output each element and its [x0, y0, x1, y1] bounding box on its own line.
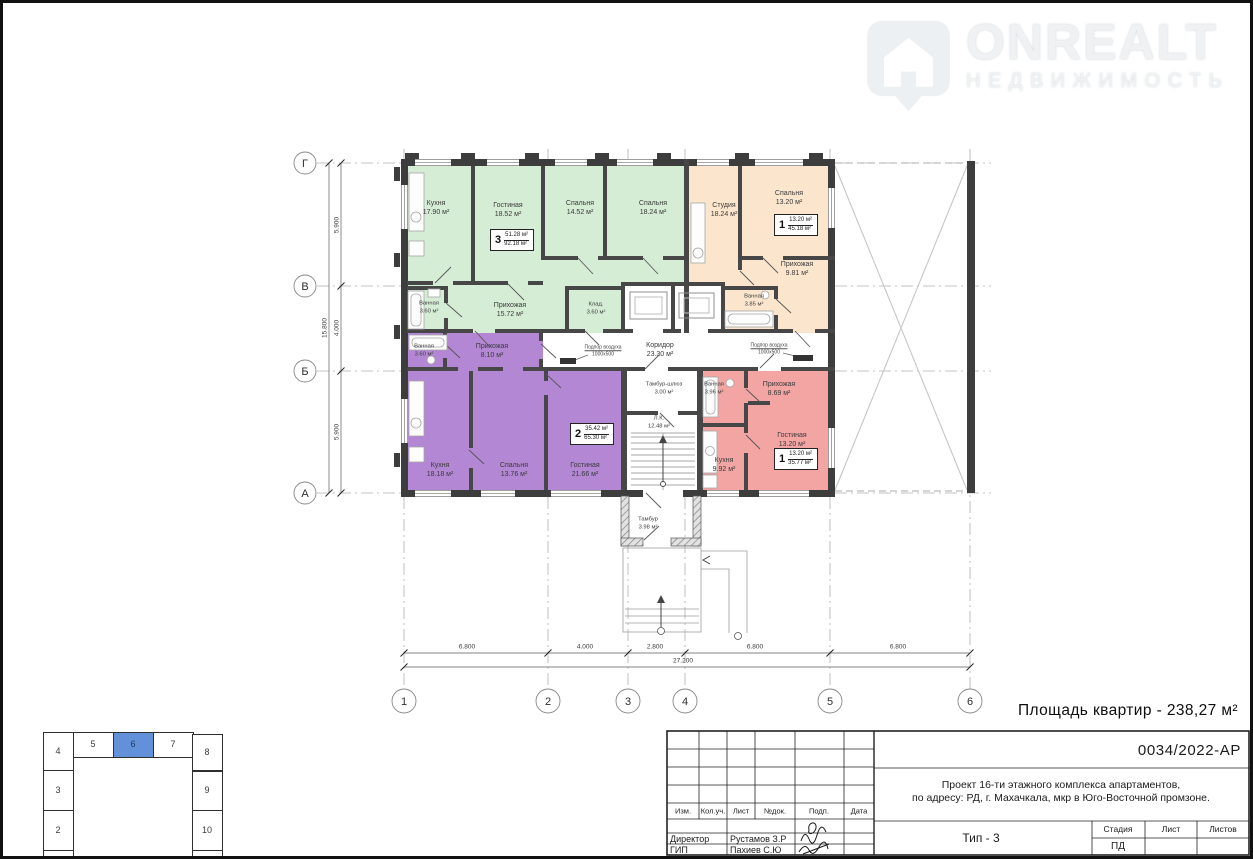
sheets-header: Листов — [1209, 825, 1237, 834]
grid-row-label: В — [301, 281, 308, 293]
stairs — [631, 433, 695, 490]
project-description-line2: по адресу: РД, г. Махачкала, мкр в Юго-В… — [877, 793, 1245, 804]
gip-name: Пахиев С.Ю — [730, 846, 781, 855]
room-label: Ванная3.85 м² — [744, 293, 764, 308]
room-label: Кухня17.90 м² — [423, 199, 450, 217]
cross-area — [835, 161, 975, 493]
sheet-type: Тип - 3 — [962, 832, 999, 844]
keyplan-number: 4 — [55, 746, 60, 756]
doc-number: 0034/2022-АР — [883, 743, 1241, 758]
keyplan-number: 2 — [55, 825, 60, 835]
role-director: Директор — [670, 835, 709, 844]
grid-col-label: 3 — [625, 696, 631, 708]
room-label: Прихожая8.10 м² — [476, 342, 508, 360]
grid-row-label: А — [301, 488, 309, 500]
keyplan-number: 7 — [170, 739, 175, 749]
dim-label: 6.800 — [747, 644, 763, 651]
director-name: Рустамов З.Р — [730, 835, 786, 844]
tb-col-header: Кол.уч. — [701, 807, 726, 815]
room-label: Ванная3.60 м² — [414, 343, 434, 358]
keyplan-number: 6 — [130, 739, 135, 749]
signature-scribbles — [799, 823, 829, 854]
room-label: Студия18.24 м² — [711, 201, 738, 219]
apartments-area-summary: Площадь квартир - 238,27 м² — [1018, 702, 1238, 720]
room-label: Спальня14.52 м² — [566, 199, 594, 217]
room-label: Клад.3.60 м² — [587, 301, 606, 316]
apartment-stamp: 3 51.28 м²92.18 м² — [490, 229, 534, 251]
room-label: Гостиная13.20 м² — [777, 431, 806, 449]
grid-col-label: 5 — [827, 696, 833, 708]
tb-col-header: Изм. — [675, 807, 691, 815]
stage-header: Стадия — [1104, 825, 1133, 834]
room-label: Спальня18.24 м² — [639, 199, 667, 217]
room-label: Тамбур-шлюз3.00 м² — [646, 381, 683, 396]
apartment-stamp: 1 13.20 м²35.77 м² — [774, 448, 818, 470]
project-description-line1: Проект 16-ти этажного комплекса апартаме… — [877, 780, 1245, 791]
tb-col-header: Лист — [733, 807, 749, 815]
grid-col-label: 6 — [967, 696, 973, 708]
dim-total-label: 27.200 — [673, 658, 693, 665]
room-label: Ванная3.60 м² — [419, 300, 439, 315]
dim-label: 5.900 — [334, 217, 341, 233]
tb-col-header: Дата — [851, 807, 868, 815]
dim-label: 4.000 — [334, 320, 341, 336]
grid-row-label: Г — [302, 158, 308, 170]
room-label: Прихожая9.81 м² — [781, 260, 813, 278]
room-label: Прихожая15.72 м² — [494, 301, 526, 319]
dim-label: 2.800 — [647, 644, 663, 651]
keyplan-number: 10 — [202, 825, 212, 835]
room-label: Прихожая8.69 м² — [763, 380, 795, 398]
room-label: Спальня13.20 м² — [775, 189, 803, 207]
apartment-stamp: 1 13.20 м²45.18 м² — [774, 214, 818, 236]
keyplan-number: 9 — [204, 785, 209, 795]
dim-label: 6.800 — [459, 644, 475, 651]
floor-plan: 1 2 3 4 5 6 Г В Б А — [3, 3, 1250, 856]
tb-col-header: №док. — [764, 807, 786, 815]
room-label: Коридор23.30 м² — [646, 341, 674, 359]
apartment-stamp: 2 35.42 м²65.30 м² — [570, 423, 614, 445]
dim-label: 6.800 — [890, 644, 906, 651]
vent-note: Подпор воздуха1000х500 — [585, 344, 622, 358]
dim-label: 4.000 — [577, 644, 593, 651]
keyplan-number: 3 — [55, 785, 60, 795]
room-label: Кухня9.92 м² — [713, 456, 736, 474]
grid-col-label: 4 — [682, 696, 688, 708]
tb-col-header: Подп. — [809, 807, 829, 815]
room-label: Гостиная21.66 м² — [570, 461, 599, 479]
room-label: Спальня13.76 м² — [500, 461, 528, 479]
room-label: Л.К.12.48 м² — [648, 415, 670, 430]
keyplan-number: 8 — [204, 747, 209, 757]
grid-col-label: 2 — [545, 696, 551, 708]
role-gip: ГИП — [670, 846, 688, 855]
keyplan-block — [192, 850, 223, 858]
dim-label: 5.900 — [334, 424, 341, 440]
room-label: Гостиная18.52 м² — [493, 201, 522, 219]
room-label: Ванная3.96 м² — [704, 381, 724, 396]
room-label: Кухня18.18 м² — [427, 461, 454, 479]
grid-row-label: Б — [301, 366, 308, 378]
vent-note: Подпор воздуха1000х500 — [751, 342, 788, 356]
dim-total-label: 15.800 — [322, 318, 329, 338]
drawing-sheet: ONREALT НЕДВИЖИМОСТЬ — [0, 0, 1253, 859]
stage-value: ПД — [1111, 842, 1125, 852]
grid-col-label: 1 — [401, 696, 407, 708]
keyplan-block — [43, 850, 74, 858]
sheet-header: Лист — [1162, 825, 1180, 834]
keyplan-number: 5 — [90, 739, 95, 749]
room-label: Тамбур3.98 м² — [638, 516, 658, 531]
